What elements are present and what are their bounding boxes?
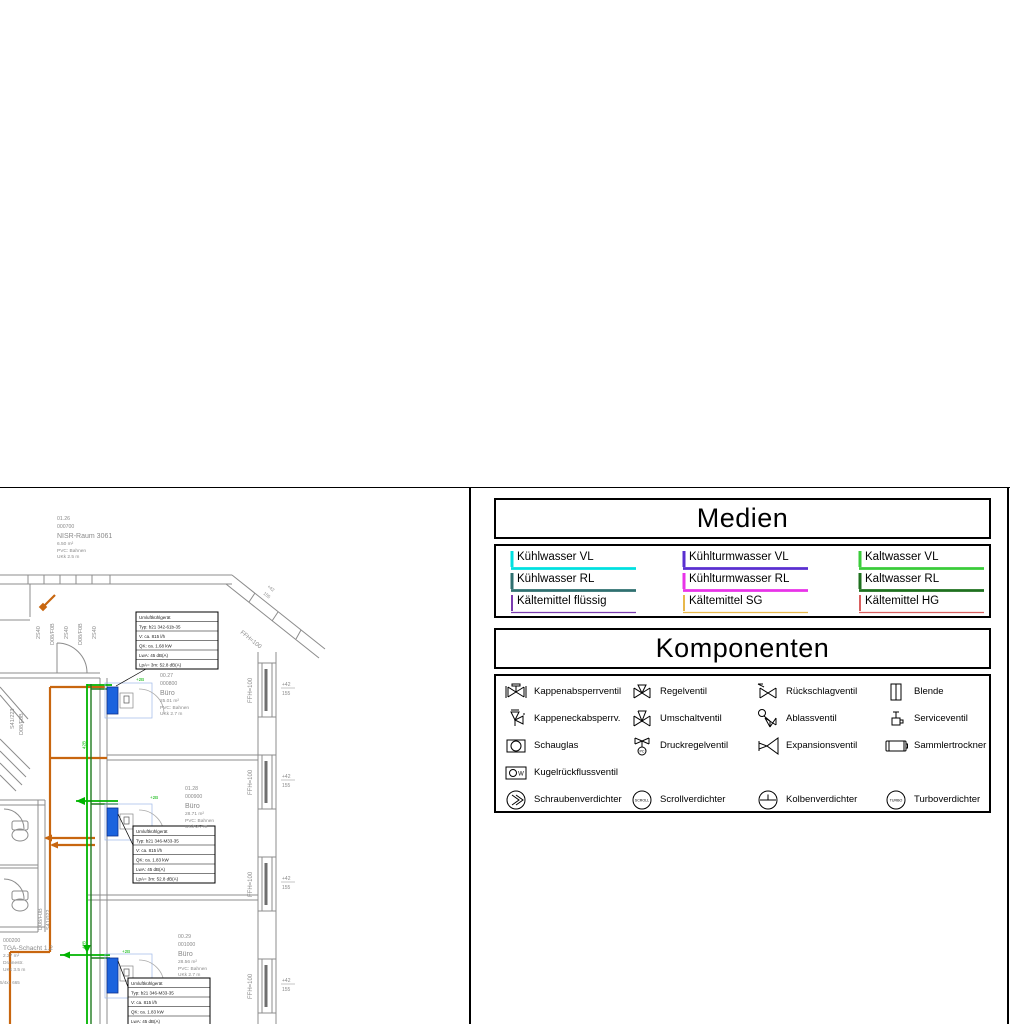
svg-text:V: ca. 815 l/h: V: ca. 815 l/h xyxy=(139,634,166,639)
komponenten-title: Komponenten xyxy=(656,633,830,664)
svg-text:QK: ca. 1.83 kW: QK: ca. 1.83 kW xyxy=(131,1010,165,1015)
svg-text:01.26: 01.26 xyxy=(57,516,70,522)
svg-text:000700: 000700 xyxy=(57,524,74,530)
svg-text:W: W xyxy=(518,771,524,777)
kolbenverdichter-icon xyxy=(756,790,780,810)
svg-text:TURBO: TURBO xyxy=(890,798,903,802)
component-schauglas: Schauglas xyxy=(504,732,630,759)
expansionsventil-icon xyxy=(756,736,780,756)
svg-text:QK: ca. 1.83 kW: QK: ca. 1.83 kW xyxy=(136,858,170,863)
fancoil-unit xyxy=(107,687,118,714)
fancoil-unit xyxy=(107,808,118,836)
svg-text:6.50 m²: 6.50 m² xyxy=(57,541,74,547)
media-entry-kuehlwasser-vl: Kühlwasser VL xyxy=(510,549,682,571)
svg-text:SCROLL: SCROLL xyxy=(635,798,649,802)
svg-text:LwA: 45 dB(A): LwA: 45 dB(A) xyxy=(139,653,169,658)
svg-text:UKk 2.7 m: UKk 2.7 m xyxy=(185,824,207,830)
pipe-orange-arrow xyxy=(50,842,58,849)
svg-text:+42: +42 xyxy=(282,682,291,688)
svg-text:+42: +42 xyxy=(282,978,291,984)
svg-text:155: 155 xyxy=(262,591,271,600)
svg-text:V: ca. 815 l/h: V: ca. 815 l/h xyxy=(131,1000,158,1005)
component-kappeneckabsperrventil: Kappeneckabsperrv. xyxy=(504,705,630,732)
media-label: Kältemittel HG xyxy=(865,595,939,607)
druckregelventil-icon: PC xyxy=(630,736,654,756)
svg-text:+2B: +2B xyxy=(122,949,130,954)
pipe-green-arrow xyxy=(62,952,70,959)
svg-text:PC: PC xyxy=(640,749,645,753)
kugelrueckflussventil-icon: W xyxy=(504,763,528,783)
component-ablassventil: Ablassventil xyxy=(756,705,884,732)
umschaltventil-icon xyxy=(630,709,654,729)
unit-data-table: Umluftkühlgerät Typ: b21 342-61b-35 V: c… xyxy=(136,612,218,669)
svg-text:V: ca. 815 l/h: V: ca. 815 l/h xyxy=(136,848,163,853)
svg-text:155: 155 xyxy=(282,783,291,789)
svg-text:QK: ca. 1.68 kW: QK: ca. 1.68 kW xyxy=(139,644,173,649)
svg-text:+2B: +2B xyxy=(136,677,144,682)
media-label: Kaltwasser VL xyxy=(865,551,939,563)
svg-text:Umluftkühlgerät: Umluftkühlgerät xyxy=(131,981,163,986)
svg-text:TGA-Schacht 1.2: TGA-Schacht 1.2 xyxy=(3,945,53,952)
svg-text:UKk 2.7 m: UKk 2.7 m xyxy=(178,972,200,978)
medien-legend-box: Kühlwasser VL Kühlwasser RL Kältemittel … xyxy=(494,544,991,618)
svg-text:000200: 000200 xyxy=(3,938,20,944)
edge-note: 5/4x1 665 xyxy=(0,980,20,985)
regelventil-icon xyxy=(630,682,654,702)
svg-text:2.27 m²: 2.27 m² xyxy=(3,953,20,959)
svg-text:Typ: b21 346-M33-35: Typ: b21 346-M33-35 xyxy=(131,991,174,996)
svg-text:FFH=100: FFH=100 xyxy=(248,769,254,795)
svg-text:LwA: 45 dB(A): LwA: 45 dB(A) xyxy=(131,1019,161,1024)
scrollverdichter-icon: SCROLL xyxy=(630,790,654,810)
svg-text:2S40: 2S40 xyxy=(92,626,98,639)
svg-text:01.28: 01.28 xyxy=(185,786,198,792)
svg-text:LpA= 3m: 52.8 dB(A): LpA= 3m: 52.8 dB(A) xyxy=(136,877,179,882)
fancoil-unit xyxy=(107,958,118,993)
media-entry-kuehlturmwasser-rl: Kühlturmwasser RL xyxy=(682,571,858,593)
sheet-frame-right-border xyxy=(1007,487,1009,1024)
pipe-green-arrow xyxy=(76,797,85,805)
svg-text:155: 155 xyxy=(282,987,291,993)
svg-text:+42: +42 xyxy=(282,774,291,780)
media-label: Kühlturmwasser RL xyxy=(689,573,789,585)
media-entry-kaeltemittel-hg: Kältemittel HG xyxy=(858,593,992,615)
svg-text:00.27: 00.27 xyxy=(160,673,173,679)
svg-text:PVC: Bahnen: PVC: Bahnen xyxy=(160,705,189,711)
unit-data-table: Umluftkühlgerät Typ: b21 346-M33-35 V: c… xyxy=(128,978,210,1024)
room-label-nisr-raum: 01.26 000700 NISR-Raum 3061 6.50 m² PVC:… xyxy=(57,516,112,560)
component-regelventil: Regelventil xyxy=(630,678,756,705)
medien-grid: Kühlwasser VL Kühlwasser RL Kältemittel … xyxy=(496,546,989,615)
svg-text:UKk 2.7 m: UKk 2.7 m xyxy=(160,711,182,717)
sammlertrockner-icon xyxy=(884,736,908,756)
floorplan-drawing: FFH=100 FFH=100 FFH=100 FFH=100 FFH=100 … xyxy=(0,487,470,1024)
svg-text:D08/F0B: D08/F0B xyxy=(38,908,44,930)
media-label: Kühlwasser VL xyxy=(517,551,594,563)
room-label-buero-0027: 00.27 000800 Büro 25.01 m² PVC: Bahnen U… xyxy=(160,673,189,717)
svg-text:42B: 42B xyxy=(82,941,87,949)
svg-text:28.56 m²: 28.56 m² xyxy=(178,959,197,965)
media-label: Kältemittel SG xyxy=(689,595,763,607)
svg-text:D08/F0B: D08/F0B xyxy=(50,623,56,645)
schraubenverdichter-icon xyxy=(504,790,528,810)
svg-text:LpA= 3m: 52.8 dB(A): LpA= 3m: 52.8 dB(A) xyxy=(139,663,182,668)
blende-icon xyxy=(884,682,908,702)
component-blende: Blende xyxy=(884,678,993,705)
komponenten-legend-title-box: Komponenten xyxy=(494,628,991,669)
svg-text:Büro: Büro xyxy=(178,951,193,958)
svg-text:UKk 3.5 m: UKk 3.5 m xyxy=(3,967,25,973)
kappeneckabsperrventil-icon xyxy=(504,709,528,729)
schauglas-icon xyxy=(504,736,528,756)
svg-text:FFH=100: FFH=100 xyxy=(248,973,254,999)
component-kolbenverdichter: Kolbenverdichter xyxy=(756,786,884,813)
media-entry-kuehlwasser-rl: Kühlwasser RL xyxy=(510,571,682,593)
kappenabsperrventil-icon xyxy=(504,682,528,702)
component-kappenabsperrventil: Kappenabsperrventil xyxy=(504,678,630,705)
media-entry-kaltwasser-vl: Kaltwasser VL xyxy=(858,549,992,571)
media-entry-kuehlturmwasser-vl: Kühlturmwasser VL xyxy=(682,549,858,571)
svg-text:2S40: 2S40 xyxy=(36,626,42,639)
svg-text:42B: 42B xyxy=(82,741,87,749)
component-kugelrueckflussventil: W Kugelrückflussventil xyxy=(504,759,630,786)
svg-text:PVC: Bahnen: PVC: Bahnen xyxy=(57,548,86,554)
komponenten-grid: Kappenabsperrventil Regelventil Rückschl… xyxy=(496,676,989,813)
pipe-orange xyxy=(10,595,107,1024)
svg-text:FFH=100: FFH=100 xyxy=(239,630,263,651)
svg-text:PVC: Bahnen: PVC: Bahnen xyxy=(185,818,214,824)
media-entry-kaeltemittel-sg: Kältemittel SG xyxy=(682,593,858,615)
svg-text:Büro: Büro xyxy=(160,690,175,697)
svg-text:155: 155 xyxy=(282,885,291,891)
serviceventil-icon xyxy=(884,709,908,729)
svg-text:UKk 2.5 m: UKk 2.5 m xyxy=(57,554,79,560)
unit-data-table: Umluftkühlgerät Typ: b21 346-M33-35 V: c… xyxy=(133,826,215,883)
room-label-buero-0029: 00.29 001000 Büro 28.56 m² PVC: Bahnen U… xyxy=(178,934,207,978)
svg-text:155: 155 xyxy=(282,691,291,697)
fancoil-control-box xyxy=(120,693,133,708)
component-umschaltventil: Umschaltventil xyxy=(630,705,756,732)
medien-title: Medien xyxy=(697,503,789,534)
svg-text:+2B: +2B xyxy=(150,795,158,800)
svg-text:LwA: 45 dB(A): LwA: 45 dB(A) xyxy=(136,867,166,872)
room-label-buero-0128: 01.28 000900 Büro 28.71 m² PVC: Bahnen U… xyxy=(185,786,214,830)
svg-text:001000: 001000 xyxy=(178,942,195,948)
media-label: Kühlturmwasser VL xyxy=(689,551,789,563)
svg-text:FFH=100: FFH=100 xyxy=(248,871,254,897)
svg-text:000900: 000900 xyxy=(185,794,202,800)
component-turboverdichter: TURBO Turboverdichter xyxy=(884,786,993,813)
component-serviceventil: Serviceventil xyxy=(884,705,993,732)
component-scrollverdichter: SCROLL Scrollverdichter xyxy=(630,786,756,813)
rueckschlagventil-icon xyxy=(756,682,780,702)
media-label: Kühlwasser RL xyxy=(517,573,594,585)
svg-text:PVC: Bahnen: PVC: Bahnen xyxy=(178,966,207,972)
component-rueckschlagventil: Rückschlagventil xyxy=(756,678,884,705)
room-label-tga-schacht: 000200 TGA-Schacht 1.2 2.27 m² Drainestr… xyxy=(0,938,53,985)
svg-text:D08/F0B: D08/F0B xyxy=(78,623,84,645)
unit-data-tables: Umluftkühlgerät Typ: b21 342-61b-35 V: c… xyxy=(128,612,218,1024)
svg-text:Büro: Büro xyxy=(185,803,200,810)
svg-text:2S40: 2S40 xyxy=(64,626,70,639)
svg-text:Typ: b21 342-61b-35: Typ: b21 342-61b-35 xyxy=(139,625,181,630)
svg-text:NISR-Raum 3061: NISR-Raum 3061 xyxy=(57,533,112,540)
svg-text:FFH=100: FFH=100 xyxy=(248,677,254,703)
turboverdichter-icon: TURBO xyxy=(884,790,908,810)
svg-text:D08/F0B: D08/F0B xyxy=(19,713,25,735)
svg-text:000800: 000800 xyxy=(160,681,177,687)
svg-text:00.29: 00.29 xyxy=(178,934,191,940)
media-label: Kältemittel flüssig xyxy=(517,595,606,607)
component-schraubenverdichter: Schraubenverdichter xyxy=(504,786,630,813)
svg-text:Umluftkühlgerät: Umluftkühlgerät xyxy=(139,615,171,620)
media-label: Kaltwasser RL xyxy=(865,573,939,585)
svg-text:Drainestr.: Drainestr. xyxy=(3,960,24,966)
component-sammlertrockner: Sammlertrockner xyxy=(884,732,993,759)
medien-legend-title-box: Medien xyxy=(494,498,991,539)
svg-text:25.01 m²: 25.01 m² xyxy=(160,698,179,704)
media-entry-kaeltemittel-fluessig: Kältemittel flüssig xyxy=(510,593,682,615)
svg-text:S41/223: S41/223 xyxy=(10,709,16,730)
svg-text:28.71 m²: 28.71 m² xyxy=(185,811,204,817)
ablassventil-icon xyxy=(756,709,780,729)
svg-text:+42: +42 xyxy=(282,876,291,882)
facade-label-rules xyxy=(281,688,295,984)
komponenten-legend-box: Kappenabsperrventil Regelventil Rückschl… xyxy=(494,674,991,813)
component-druckregelventil: PC Druckregelventil xyxy=(630,732,756,759)
svg-text:Umluftkühlgerät: Umluftkühlgerät xyxy=(136,829,168,834)
svg-text:Typ: b21 346-M33-35: Typ: b21 346-M33-35 xyxy=(136,839,179,844)
media-entry-kaltwasser-rl: Kaltwasser RL xyxy=(858,571,992,593)
component-expansionsventil: Expansionsventil xyxy=(756,732,884,759)
